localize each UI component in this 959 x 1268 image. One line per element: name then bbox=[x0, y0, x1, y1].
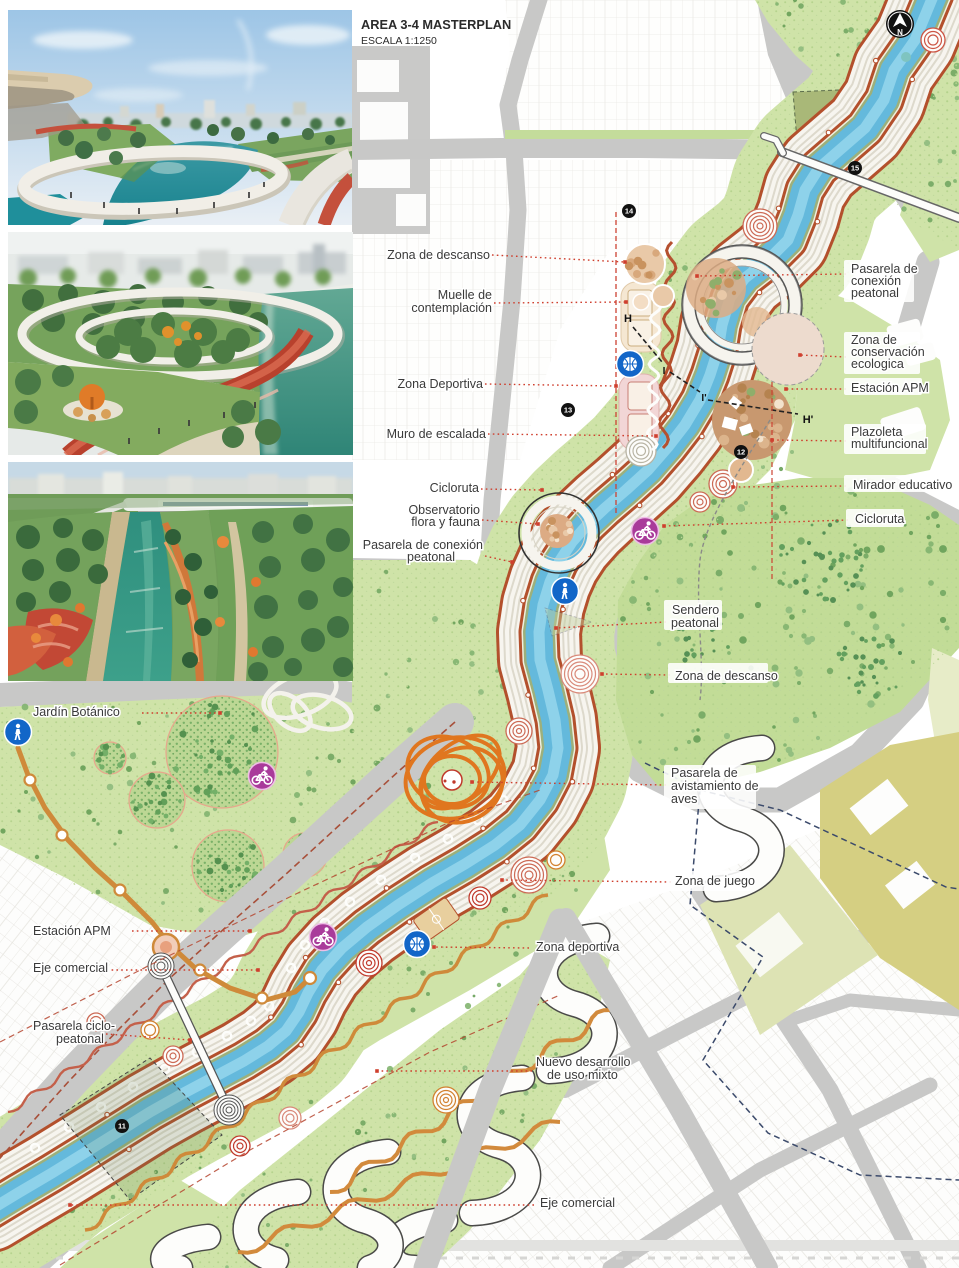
svg-text:Zona de juego: Zona de juego bbox=[675, 874, 755, 888]
svg-text:Muro de escalada: Muro de escalada bbox=[387, 427, 486, 441]
svg-text:Jardín Botánico: Jardín Botánico bbox=[33, 705, 120, 719]
svg-text:ecologica: ecologica bbox=[851, 357, 904, 371]
svg-text:Estación APM: Estación APM bbox=[851, 381, 929, 395]
svg-text:Mirador educativo: Mirador educativo bbox=[853, 478, 952, 492]
svg-text:peatonal: peatonal bbox=[407, 550, 455, 564]
svg-text:peatonal: peatonal bbox=[851, 286, 899, 300]
svg-text:Muelle de: Muelle de bbox=[438, 288, 492, 302]
svg-text:Sendero: Sendero bbox=[672, 603, 719, 617]
svg-text:N: N bbox=[897, 28, 903, 37]
svg-text:H': H' bbox=[803, 414, 814, 426]
svg-text:multifuncional: multifuncional bbox=[851, 437, 927, 451]
svg-text:ESCALA 1:1250: ESCALA 1:1250 bbox=[361, 35, 437, 47]
svg-text:Cicloruta: Cicloruta bbox=[430, 481, 479, 495]
svg-text:12: 12 bbox=[737, 448, 745, 457]
svg-text:contemplación: contemplación bbox=[411, 301, 492, 315]
svg-text:H: H bbox=[624, 313, 632, 325]
svg-text:flora y fauna: flora y fauna bbox=[411, 515, 480, 529]
svg-text:AREA 3-4 MASTERPLAN: AREA 3-4 MASTERPLAN bbox=[361, 17, 511, 32]
svg-text:11: 11 bbox=[118, 1122, 126, 1131]
svg-text:avistamiento de: avistamiento de bbox=[671, 779, 759, 793]
svg-text:14: 14 bbox=[625, 207, 634, 216]
svg-text:de uso mixto: de uso mixto bbox=[547, 1068, 618, 1082]
svg-text:Zona de descanso: Zona de descanso bbox=[387, 248, 490, 262]
svg-text:13: 13 bbox=[564, 406, 572, 415]
svg-text:Zona Deportiva: Zona Deportiva bbox=[398, 377, 484, 391]
svg-text:peatonal: peatonal bbox=[56, 1032, 104, 1046]
svg-text:peatonal: peatonal bbox=[671, 616, 719, 630]
svg-text:15: 15 bbox=[851, 164, 859, 173]
svg-text:Zona deportiva: Zona deportiva bbox=[536, 940, 619, 954]
svg-text:Cicloruta: Cicloruta bbox=[855, 512, 904, 526]
svg-text:Zona de descanso: Zona de descanso bbox=[675, 669, 778, 683]
svg-text:Estación APM: Estación APM bbox=[33, 924, 111, 938]
svg-text:Eje comercial: Eje comercial bbox=[33, 961, 108, 975]
svg-text:Pasarela de: Pasarela de bbox=[671, 766, 738, 780]
svg-text:I': I' bbox=[701, 393, 706, 404]
svg-text:Nuevo desarrollo: Nuevo desarrollo bbox=[536, 1055, 631, 1069]
svg-text:I: I bbox=[663, 366, 666, 377]
svg-text:Pasarela ciclo-: Pasarela ciclo- bbox=[33, 1019, 115, 1033]
svg-text:Eje comercial: Eje comercial bbox=[540, 1196, 615, 1210]
svg-text:aves: aves bbox=[671, 792, 697, 806]
